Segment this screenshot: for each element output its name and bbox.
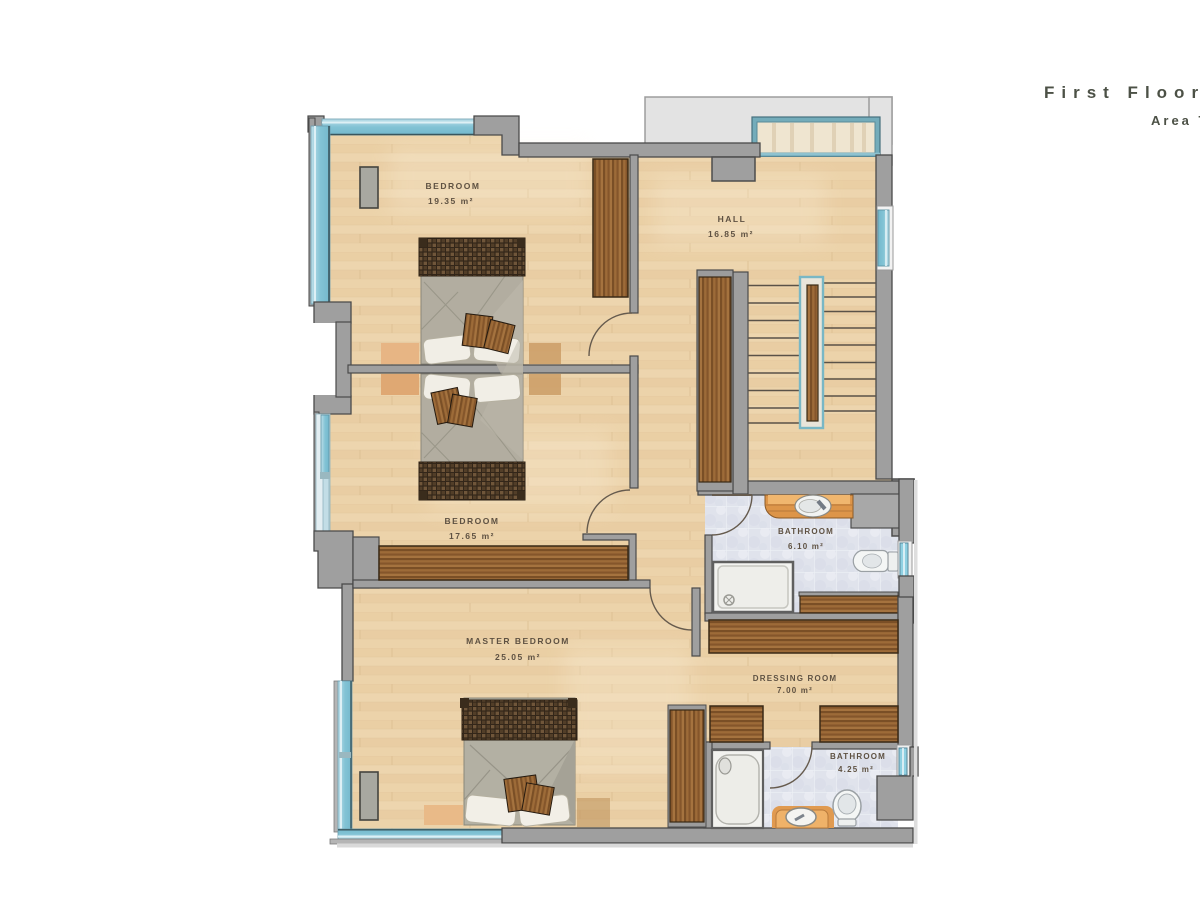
svg-text:BATHROOM: BATHROOM — [778, 527, 834, 536]
svg-text:BEDROOM: BEDROOM — [426, 181, 481, 191]
svg-text:17.65 m²: 17.65 m² — [449, 531, 495, 541]
svg-text:BEDROOM: BEDROOM — [445, 516, 500, 526]
svg-text:6.10 m²: 6.10 m² — [788, 542, 824, 551]
svg-text:BATHROOM: BATHROOM — [830, 752, 886, 761]
svg-text:4.25 m²: 4.25 m² — [838, 765, 874, 774]
svg-text:25.05 m²: 25.05 m² — [495, 652, 541, 662]
svg-text:19.35 m²: 19.35 m² — [428, 196, 474, 206]
svg-text:DRESSING ROOM: DRESSING ROOM — [753, 674, 838, 683]
svg-text:16.85 m²: 16.85 m² — [708, 229, 754, 239]
svg-text:First Floor Pl: First Floor Pl — [1044, 83, 1200, 102]
svg-text:MASTER BEDROOM: MASTER BEDROOM — [466, 636, 570, 646]
svg-text:HALL: HALL — [718, 214, 747, 224]
svg-text:7.00 m²: 7.00 m² — [777, 686, 813, 695]
svg-text:Area Tot: Area Tot — [1151, 113, 1200, 128]
